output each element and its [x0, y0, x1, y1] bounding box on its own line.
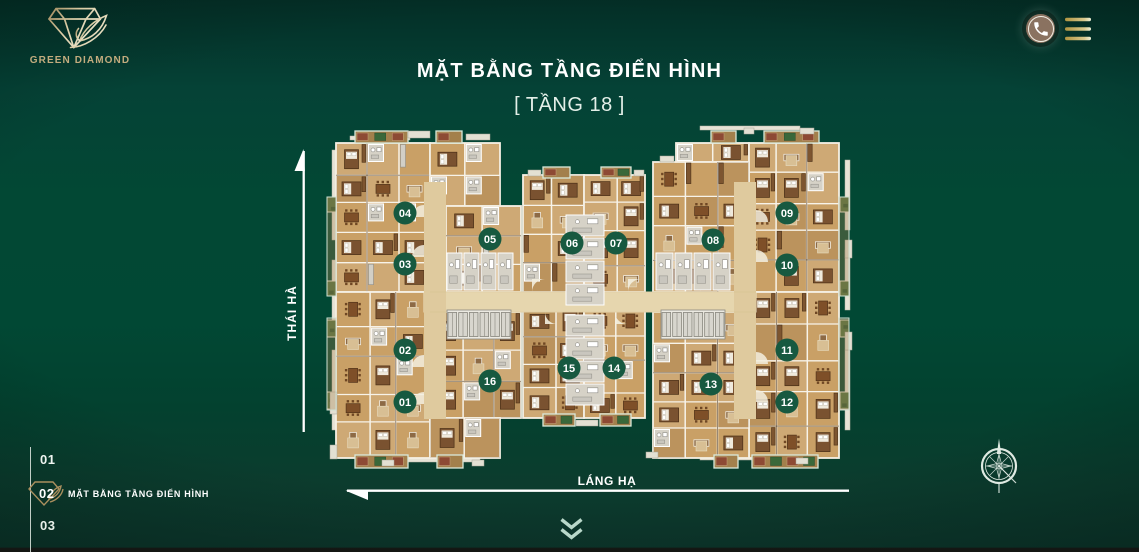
- svg-text:09: 09: [781, 208, 793, 220]
- svg-text:07: 07: [610, 238, 622, 250]
- svg-text:01: 01: [399, 397, 411, 409]
- svg-text:05: 05: [484, 234, 496, 246]
- svg-text:06: 06: [566, 238, 578, 250]
- svg-text:16: 16: [484, 376, 496, 388]
- svg-text:10: 10: [781, 260, 793, 272]
- svg-text:15: 15: [563, 363, 575, 375]
- svg-text:04: 04: [399, 208, 412, 220]
- svg-text:08: 08: [707, 235, 719, 247]
- svg-text:02: 02: [399, 345, 411, 357]
- svg-text:12: 12: [781, 397, 793, 409]
- svg-text:14: 14: [608, 363, 621, 375]
- svg-text:03: 03: [399, 259, 411, 271]
- svg-text:13: 13: [705, 379, 717, 391]
- svg-text:11: 11: [781, 345, 793, 357]
